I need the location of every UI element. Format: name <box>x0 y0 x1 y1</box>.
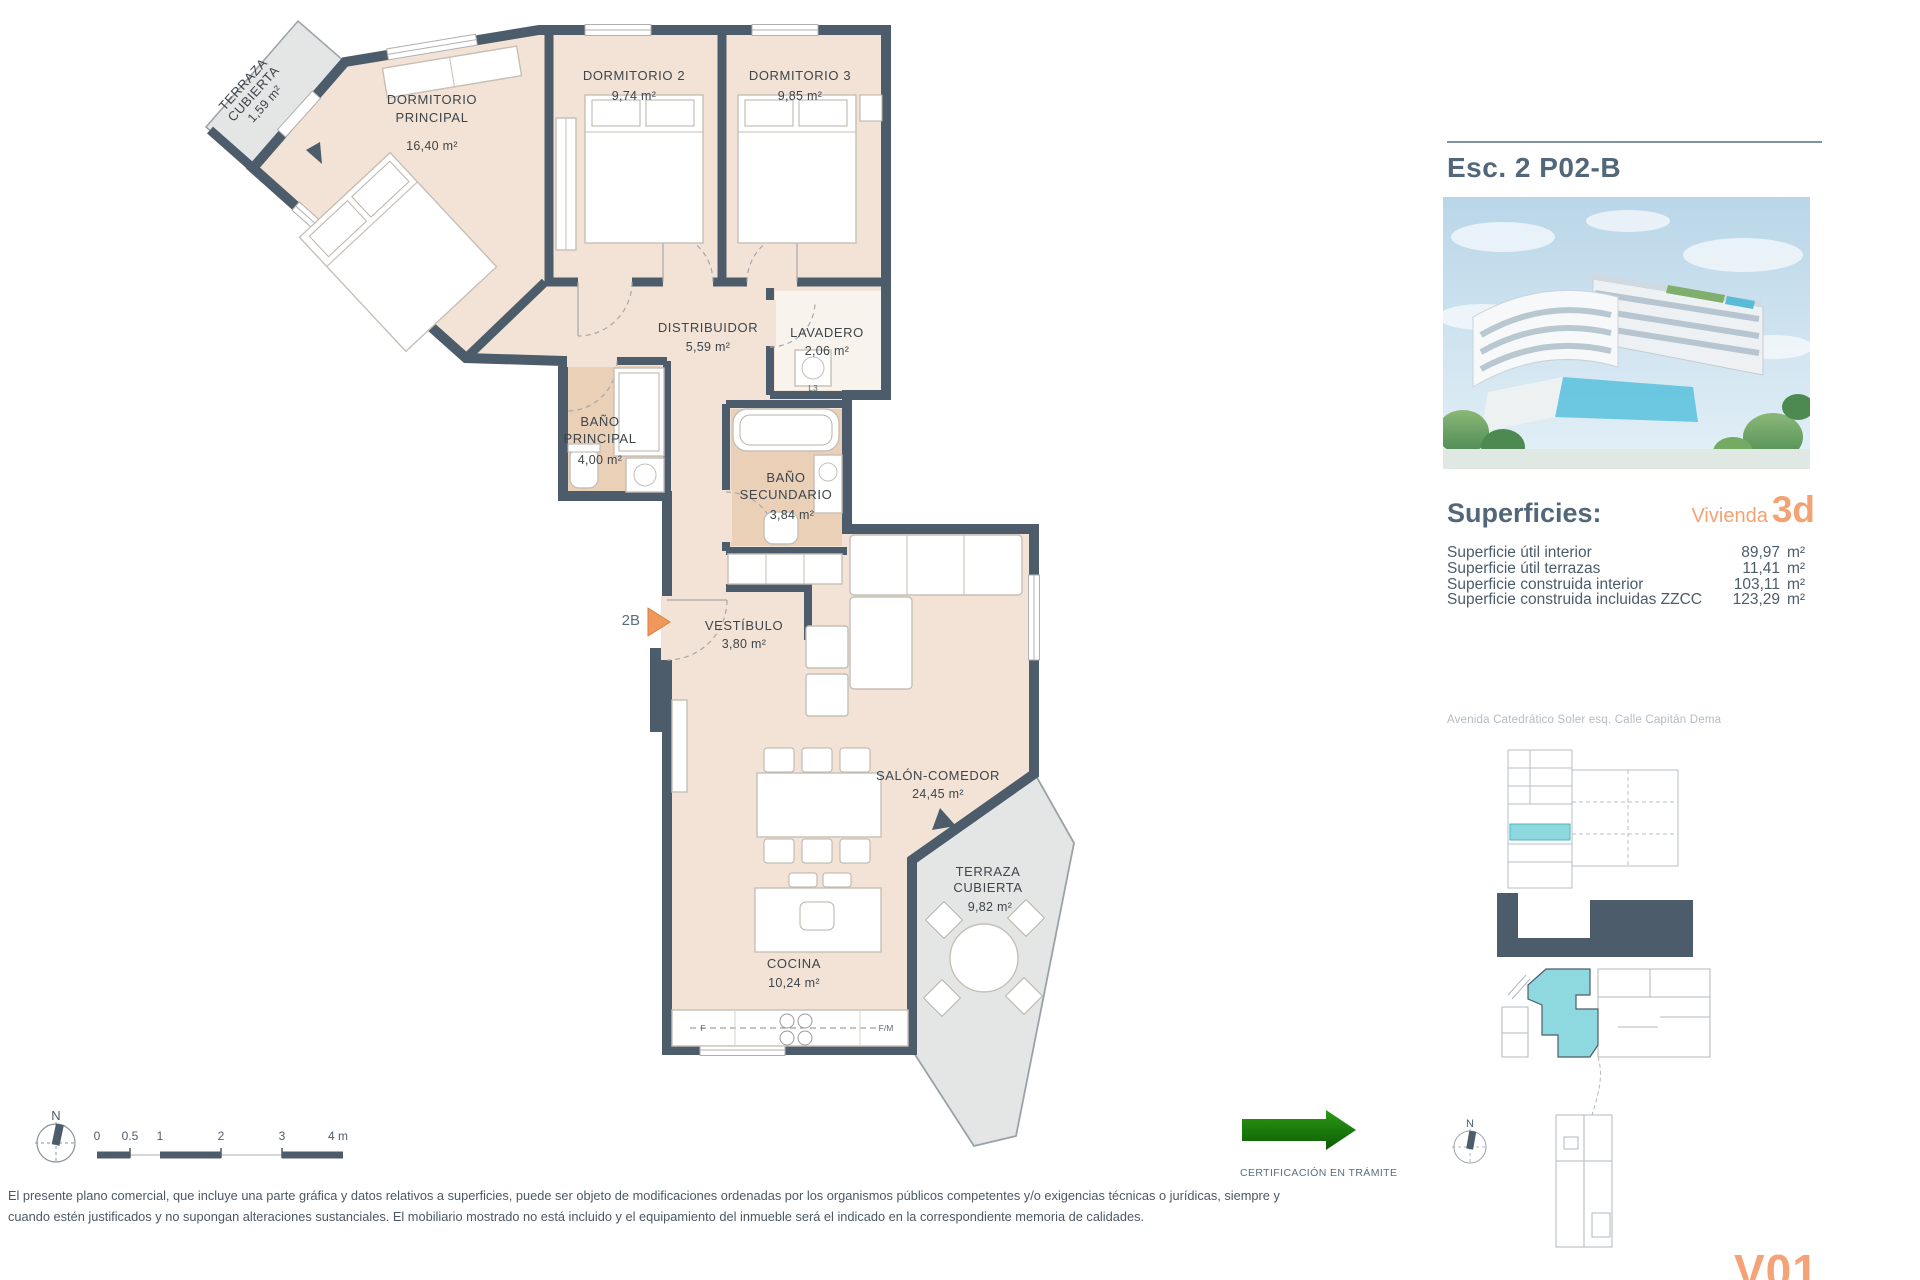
disclaimer-line2: cuando estén justificados y no supongan … <box>8 1207 1358 1228</box>
scale-bar: 0 0.5 1 2 3 4 m <box>94 1129 348 1159</box>
street-address: Avenida Catedrático Soler esq. Calle Cap… <box>1447 714 1777 726</box>
certification-label: CERTIFICACIÓN EN TRÁMITE <box>1240 1167 1430 1179</box>
svg-text:COCINA: COCINA <box>767 956 821 971</box>
section-highlight-floor <box>1510 824 1570 840</box>
table-row: Superficie construida incluidas ZZCC 123… <box>1447 592 1817 608</box>
keyplan-unit-highlight <box>1528 969 1598 1057</box>
appliance-label-fm: F/M <box>879 1023 894 1033</box>
svg-text:CUBIERTA: CUBIERTA <box>953 880 1022 895</box>
disclaimer-line1: El presente plano comercial, que incluye… <box>8 1186 1358 1207</box>
superficies-header: Superficies: Vivienda3d <box>1447 489 1815 531</box>
building-section-diagram <box>1490 740 1700 960</box>
svg-text:3,84 m²: 3,84 m² <box>770 508 814 522</box>
svg-text:0: 0 <box>94 1129 101 1143</box>
svg-text:9,74 m²: 9,74 m² <box>612 89 656 103</box>
building-render <box>1443 197 1810 469</box>
page-title: Esc. 2 P02-B <box>1447 152 1621 184</box>
svg-text:0.5: 0.5 <box>122 1129 139 1143</box>
svg-text:3: 3 <box>279 1129 286 1143</box>
svg-text:DORMITORIO: DORMITORIO <box>387 92 477 107</box>
svg-text:10,24 m²: 10,24 m² <box>768 976 820 990</box>
key-plan: N <box>1440 955 1720 1265</box>
version-label: V01 <box>1734 1244 1819 1280</box>
svg-text:SALÓN-COMEDOR: SALÓN-COMEDOR <box>876 768 1000 783</box>
svg-text:BAÑO: BAÑO <box>766 470 805 485</box>
svg-text:LAVADERO: LAVADERO <box>790 325 864 340</box>
disclaimer: El presente plano comercial, que incluye… <box>8 1186 1358 1227</box>
svg-text:9,85 m²: 9,85 m² <box>778 89 822 103</box>
svg-text:5,59 m²: 5,59 m² <box>686 340 730 354</box>
svg-text:DORMITORIO 3: DORMITORIO 3 <box>749 68 851 83</box>
svg-text:SECUNDARIO: SECUNDARIO <box>740 487 833 502</box>
svg-text:PRINCIPAL: PRINCIPAL <box>563 431 636 446</box>
svg-text:TERRAZA: TERRAZA <box>956 864 1021 879</box>
svg-text:9,82 m²: 9,82 m² <box>968 900 1012 914</box>
svg-text:1: 1 <box>157 1129 164 1143</box>
section-podium <box>1497 893 1693 957</box>
svg-text:N: N <box>51 1108 60 1123</box>
svg-text:2: 2 <box>218 1129 225 1143</box>
svg-text:DORMITORIO 2: DORMITORIO 2 <box>583 68 685 83</box>
superficies-title: Superficies: <box>1447 498 1602 529</box>
floor-plan: L3 F F/M 2B TERRAZA CUBIERTA 1,59 m² DOR… <box>0 0 1160 1180</box>
svg-text:VESTÍBULO: VESTÍBULO <box>705 618 783 633</box>
vivienda-badge: Vivienda3d <box>1691 489 1815 531</box>
appliance-label-lavadero: L3 <box>808 383 818 393</box>
superficies-table: Superficie útil interior 89,97 m² Superf… <box>1447 545 1817 608</box>
keyplan-outline <box>1502 969 1710 1247</box>
keyplan-compass-icon: N <box>1452 1118 1488 1165</box>
certification-block: CERTIFICACIÓN EN TRÁMITE <box>1240 1106 1430 1179</box>
svg-text:24,45 m²: 24,45 m² <box>912 787 964 801</box>
svg-text:2,06 m²: 2,06 m² <box>805 344 849 358</box>
table-row: Superficie útil terrazas 11,41 m² <box>1447 561 1817 577</box>
compass-icon: N <box>35 1108 77 1164</box>
svg-text:16,40 m²: 16,40 m² <box>406 139 458 153</box>
svg-text:DISTRIBUIDOR: DISTRIBUIDOR <box>658 320 758 335</box>
svg-text:N: N <box>1466 1118 1474 1130</box>
vivienda-code: 3d <box>1772 489 1815 530</box>
svg-text:4,00 m²: 4,00 m² <box>578 453 622 467</box>
table-row: Superficie construida interior 103,11 m² <box>1447 577 1817 593</box>
appliance-label-f: F <box>700 1023 705 1033</box>
entrance-label: 2B <box>622 612 640 629</box>
svg-text:4 m: 4 m <box>328 1129 348 1143</box>
table-row: Superficie útil interior 89,97 m² <box>1447 545 1817 561</box>
svg-text:3,80 m²: 3,80 m² <box>722 637 766 651</box>
svg-text:BAÑO: BAÑO <box>580 414 619 429</box>
panel-divider <box>1447 141 1822 143</box>
svg-text:PRINCIPAL: PRINCIPAL <box>395 110 468 125</box>
cert-arrow-icon <box>1240 1106 1360 1154</box>
